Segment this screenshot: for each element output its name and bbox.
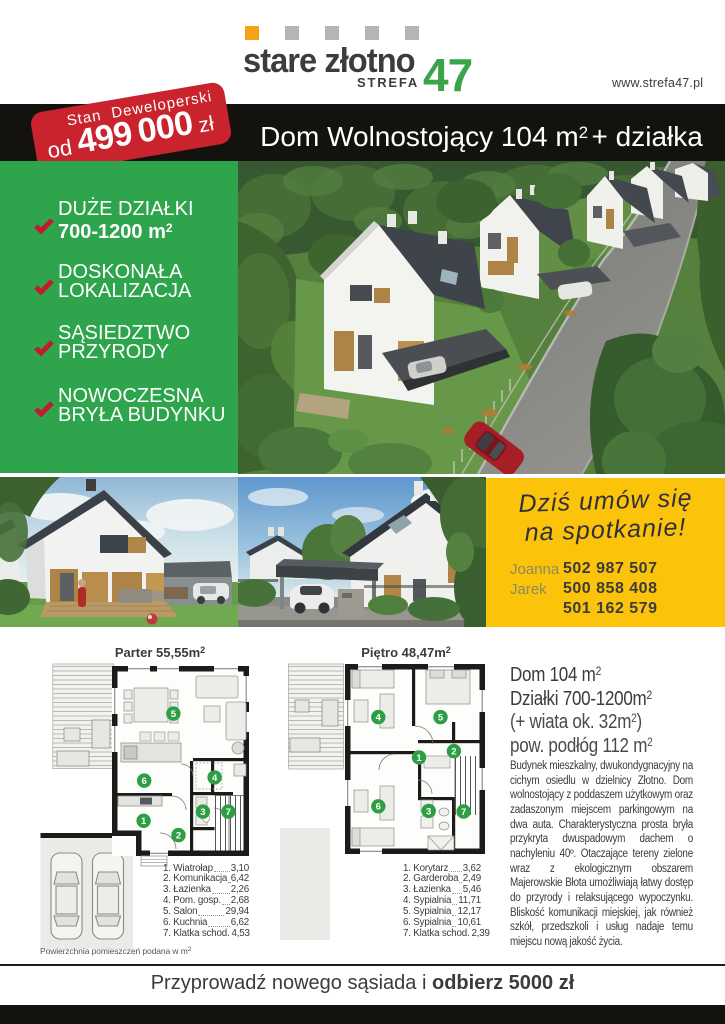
svg-text:5: 5 [438,713,444,724]
svg-text:7: 7 [226,807,231,818]
svg-text:5: 5 [171,709,177,720]
svg-text:6: 6 [142,776,147,787]
svg-text:2: 2 [451,747,456,758]
svg-text:4: 4 [376,713,382,724]
svg-text:1: 1 [416,753,422,764]
svg-text:1: 1 [141,816,147,827]
svg-text:2: 2 [176,831,181,842]
svg-text:7: 7 [461,807,466,818]
svg-text:3: 3 [200,807,205,818]
svg-text:3: 3 [426,806,431,817]
svg-text:4: 4 [212,773,218,784]
svg-text:6: 6 [376,802,381,813]
